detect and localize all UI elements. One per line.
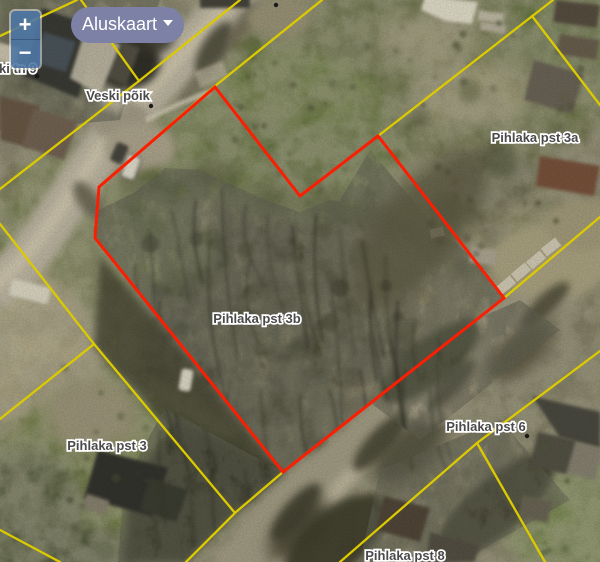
svg-text:Pihlaka pst 3: Pihlaka pst 3	[67, 438, 146, 453]
svg-text:Pihlaka pst 6: Pihlaka pst 6	[446, 419, 525, 434]
svg-text:Pihlaka pst 8: Pihlaka pst 8	[365, 548, 444, 562]
svg-text:Veski põik: Veski põik	[86, 88, 150, 103]
svg-text:Pihlaka pst 3a: Pihlaka pst 3a	[492, 130, 579, 145]
svg-text:Pihlaka pst 3b: Pihlaka pst 3b	[213, 311, 300, 326]
